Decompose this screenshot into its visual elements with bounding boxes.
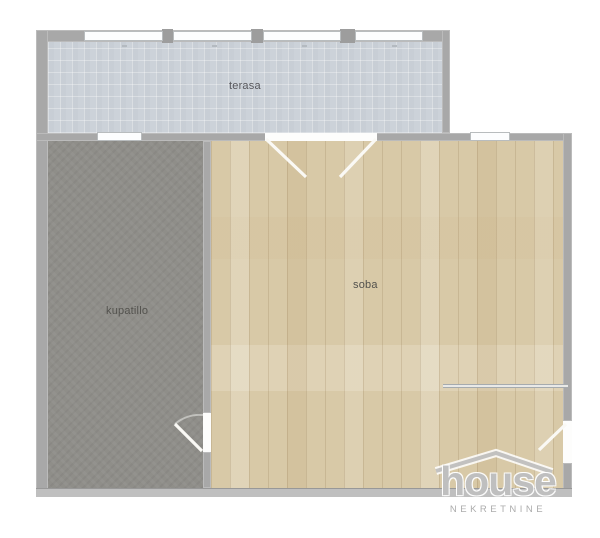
left-exterior-wall: [36, 30, 48, 497]
kupatillo-window: [97, 132, 142, 141]
right-exterior-wall-upper: [563, 133, 572, 421]
vent-mark: [212, 45, 217, 47]
terasa-right-wall: [442, 30, 450, 133]
vent-mark: [302, 45, 307, 47]
top-wall-stub: [251, 29, 263, 43]
vent-mark: [122, 45, 127, 47]
soba-room-label: soba: [353, 279, 378, 291]
terasa-window-3: [263, 31, 341, 41]
kupatillo-room-label: kupatillo: [106, 305, 148, 317]
soba-room-floor: [211, 141, 563, 488]
bottom-exterior-wall: [36, 488, 572, 497]
top-wall-stub: [340, 29, 355, 43]
soba-top-window: [470, 132, 510, 141]
terasa-room-label: terasa: [229, 80, 261, 92]
watermark-logo-subtitle: NEKRETNINE: [430, 504, 566, 515]
floor-plan: terasa kupatillo soba house NEKRETNINE: [0, 0, 600, 538]
terasa-window-4: [355, 31, 423, 41]
kupatillo-soba-partition-wall-stub: [203, 452, 211, 488]
house-logo-roof-icon: [428, 446, 568, 478]
kupatillo-door-opening: [203, 413, 211, 452]
soba-divider-line: [443, 384, 568, 388]
terasa-window-2: [173, 31, 252, 41]
top-wall-stub: [162, 29, 173, 43]
terasa-window-1: [84, 31, 163, 41]
vent-mark: [392, 45, 397, 47]
kupatillo-soba-partition-wall: [203, 141, 211, 413]
terasa-soba-double-door-opening: [265, 133, 377, 141]
